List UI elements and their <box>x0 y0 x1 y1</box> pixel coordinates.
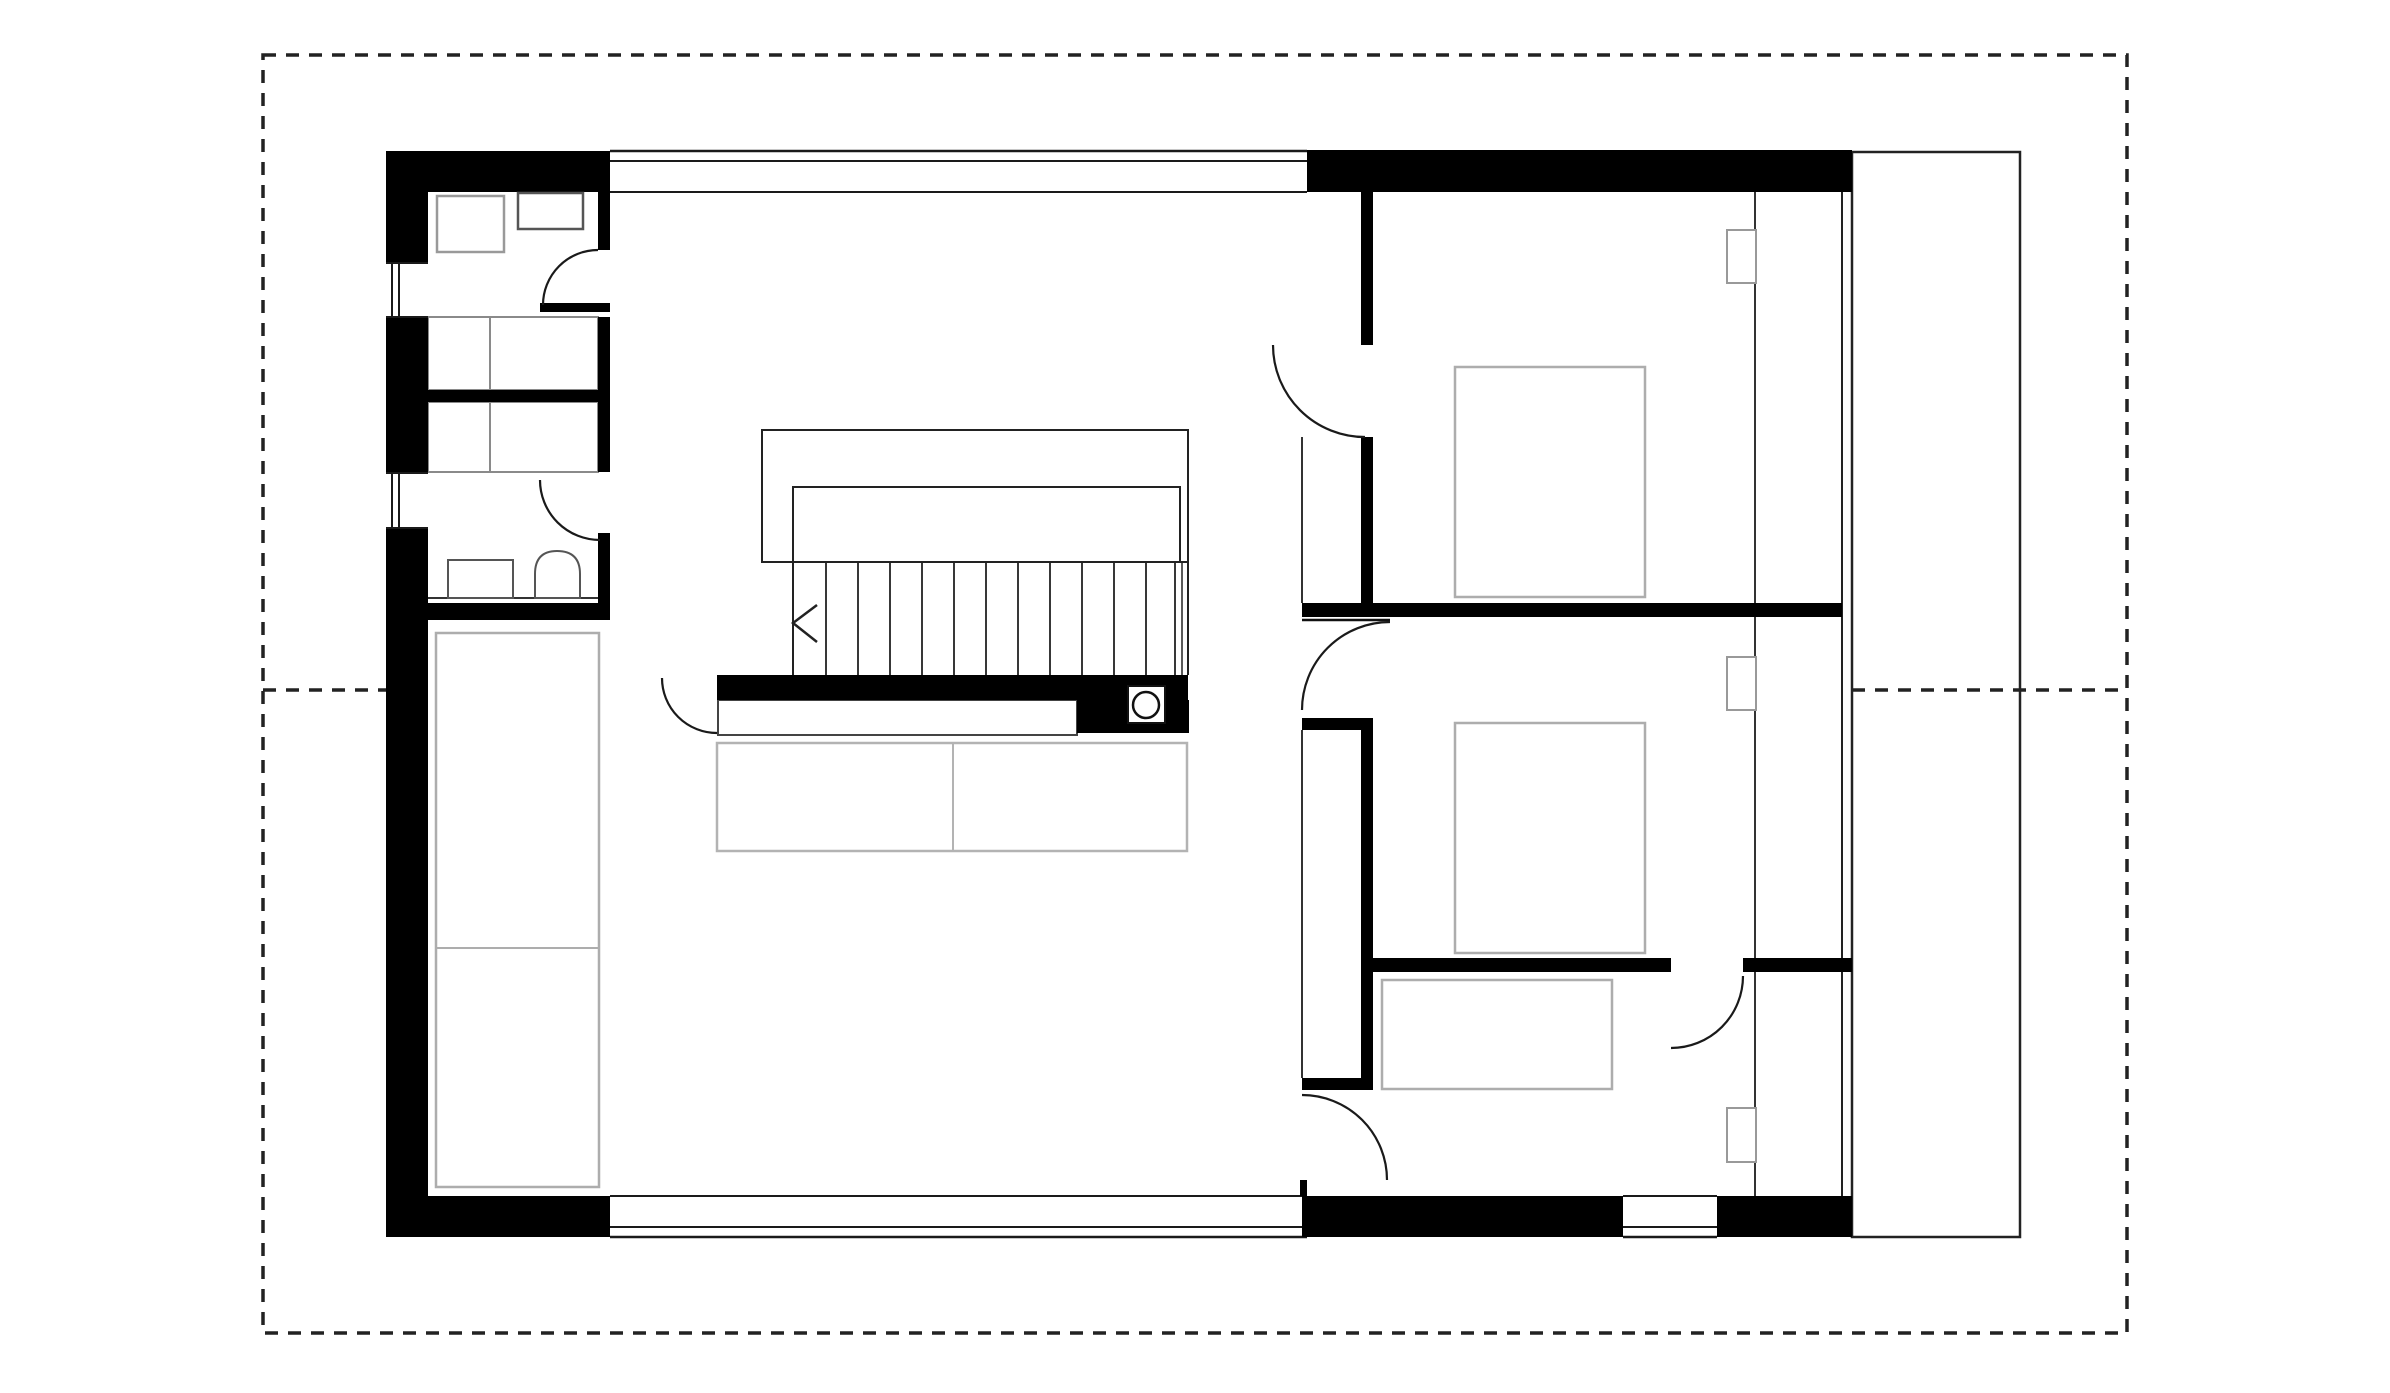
wall-top-right-wing <box>1307 150 1852 192</box>
wall-top-left-wing <box>386 151 610 192</box>
toilet <box>535 551 580 598</box>
wall-left-lower <box>386 528 428 1237</box>
wardrobe-living <box>436 633 599 1187</box>
door-arc-bedroom-middle <box>1302 622 1390 710</box>
door-arc-bathroom <box>540 480 600 540</box>
bedroom-west-wall-lower <box>1361 718 1373 1078</box>
flue-circle <box>1133 692 1159 718</box>
floorplan-sheet <box>0 0 2390 1393</box>
print-border <box>263 55 2127 1333</box>
wall-bottom-left <box>386 1196 610 1237</box>
door-arc-utility <box>543 250 598 305</box>
door-arc-bedroom-bottom-room <box>1671 976 1743 1048</box>
stair-direction-arrow <box>793 605 817 642</box>
wall-h1-bedrooms <box>1302 603 1842 617</box>
niche-bottom <box>1727 1108 1756 1162</box>
door-arc-living-hall <box>662 678 717 733</box>
utility-appliance <box>437 196 504 252</box>
understair-wall <box>717 675 1188 700</box>
bathroom-bottom-wall <box>386 603 610 620</box>
closet-a-right-stub <box>598 317 610 390</box>
closet-band-wall <box>428 390 610 402</box>
desk-bench <box>718 700 1077 735</box>
wall-h2-right <box>1743 958 1852 972</box>
niche-middle <box>1727 657 1756 710</box>
door-arc-bedroom-bottom-hall <box>1302 1095 1387 1180</box>
closet-b-outline <box>428 402 598 472</box>
washbasin <box>448 560 513 598</box>
bedroom-west-wall-mid <box>1361 437 1373 603</box>
utility-right-wall <box>598 192 610 250</box>
wall-left-middle <box>386 317 428 473</box>
wall-bottom-right <box>1717 1196 1852 1237</box>
closet-a-outline <box>428 317 598 390</box>
niche-top <box>1727 230 1756 283</box>
wall-bottom-middle <box>1302 1196 1623 1237</box>
bedroom-west-cap-bottom <box>1302 1078 1373 1090</box>
bottom-door-stub <box>1300 1180 1307 1196</box>
bed-bottom-bedroom <box>1382 980 1612 1089</box>
bathroom-right-wall <box>598 533 610 603</box>
terrace-strip <box>1852 152 2020 1237</box>
bedroom-west-wall-upper <box>1361 192 1373 345</box>
closet-b-right-stub <box>598 402 610 472</box>
bed-top-bedroom <box>1455 367 1645 597</box>
bed-middle-bedroom <box>1455 723 1645 953</box>
utility-door-stub <box>540 303 610 312</box>
door-arc-bedroom-top <box>1273 345 1365 437</box>
utility-cabinet <box>518 193 583 229</box>
wall-h2-left <box>1373 958 1671 972</box>
floorplan-svg <box>0 0 2390 1393</box>
